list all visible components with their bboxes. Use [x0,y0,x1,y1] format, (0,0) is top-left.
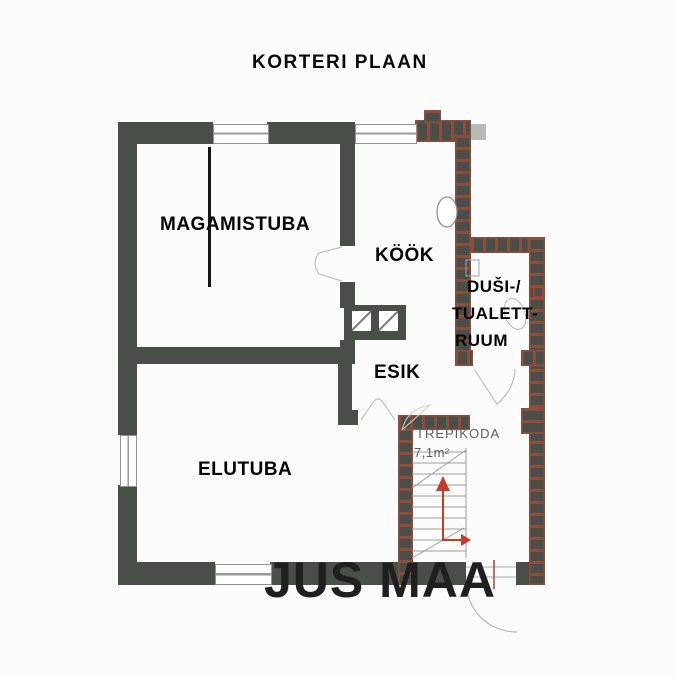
kitchen-fixture-icon [437,197,457,227]
stairwell-area-label: 7,1m² [414,445,450,460]
stair-arrow-path [443,491,461,540]
room-label-stairwell: TREPIKODA [416,426,500,441]
room-label-hallway: ESIK [374,362,420,384]
stair-break-lines [412,450,466,558]
floor-plan: KORTERI PLAAN [0,0,677,678]
room-label-bathroom-line1: DUŠI-/ [467,277,521,297]
bathroom-sink-icon [466,260,479,276]
bathroom-door-arc [474,369,515,404]
bedroom-door-arc [315,247,342,281]
stair-treads [412,452,466,551]
hallway-double-door [361,399,395,420]
page-title: KORTERI PLAAN [252,52,428,74]
room-label-living-room: ELUTUBA [198,459,292,481]
room-label-bathroom-line3: RUUM [455,331,508,351]
room-label-bathroom-line2: TUALETT- [452,304,538,324]
room-label-kitchen: KÖÖK [375,245,434,267]
stair-arrow-up-icon [436,476,450,491]
right-wall-red-marker [534,286,543,297]
watermark-text: JUS MAA [264,555,496,601]
room-label-bedroom: MAGAMISTUBA [160,214,310,236]
